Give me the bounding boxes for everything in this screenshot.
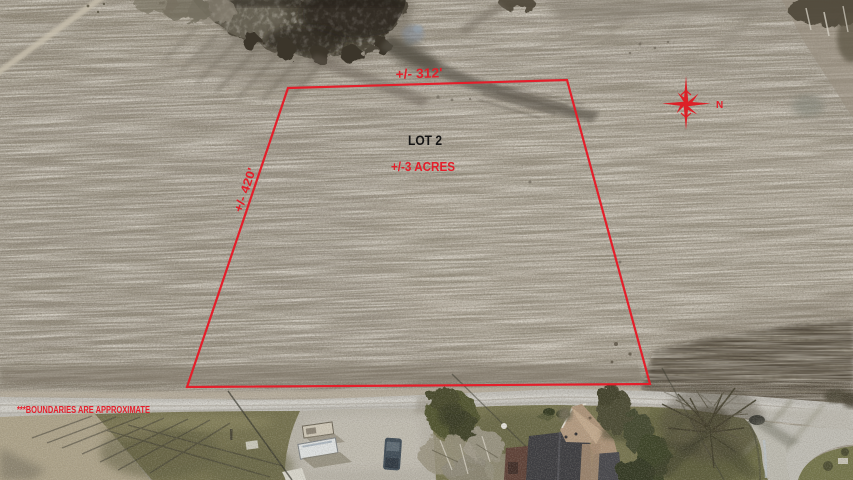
svg-text:***BOUNDARIES ARE APPROXIMATE: ***BOUNDARIES ARE APPROXIMATE [17, 405, 150, 416]
svg-text:+/- 312': +/- 312' [395, 65, 442, 82]
svg-text:N: N [716, 100, 723, 111]
svg-text:+/-3 ACRES: +/-3 ACRES [391, 159, 455, 174]
svg-text:LOT 2: LOT 2 [408, 132, 442, 148]
